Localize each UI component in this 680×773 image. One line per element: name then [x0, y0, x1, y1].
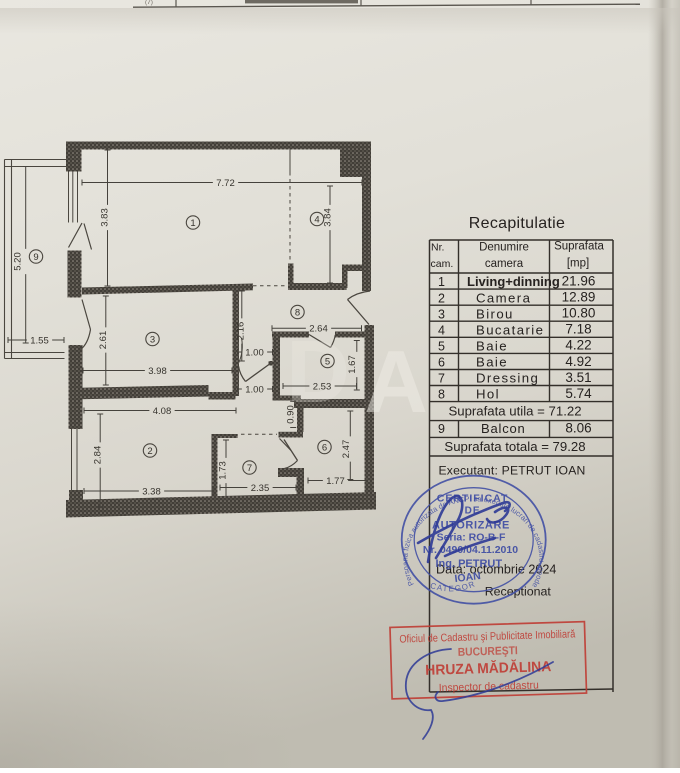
svg-text:2.64: 2.64	[309, 324, 328, 335]
svg-text:1: 1	[190, 218, 195, 229]
svg-text:Nr.: Nr.	[431, 242, 444, 254]
svg-text:2.47: 2.47	[341, 440, 352, 459]
svg-text:Living+dinning: Living+dinning	[467, 274, 560, 289]
svg-text:Bucatarie: Bucatarie	[476, 322, 544, 337]
svg-text:Suprafata totala = 79.28: Suprafata totala = 79.28	[444, 439, 585, 454]
svg-text:Camera: Camera	[476, 290, 531, 305]
svg-text:9: 9	[438, 422, 445, 436]
svg-text:12.89: 12.89	[562, 290, 596, 305]
svg-text:Birou: Birou	[476, 306, 514, 321]
svg-text:3.83: 3.83	[100, 208, 111, 227]
svg-text:4: 4	[438, 323, 445, 337]
svg-text:1.77: 1.77	[326, 476, 345, 487]
svg-text:(7): (7)	[145, 0, 153, 6]
svg-text:8: 8	[295, 307, 300, 318]
svg-text:Dressing: Dressing	[476, 371, 539, 386]
svg-text:Baie: Baie	[476, 338, 508, 353]
svg-text:1.55: 1.55	[30, 335, 49, 346]
svg-text:7: 7	[247, 463, 252, 474]
svg-text:Ing. PETRUT: Ing. PETRUT	[435, 558, 502, 570]
svg-text:cam.: cam.	[431, 258, 454, 270]
svg-text:2.35: 2.35	[251, 483, 270, 494]
svg-text:Recapitulatie: Recapitulatie	[469, 215, 565, 232]
svg-text:1.00: 1.00	[245, 384, 264, 395]
svg-text:6: 6	[438, 355, 445, 369]
svg-text:6: 6	[322, 442, 327, 453]
svg-text:3.98: 3.98	[148, 366, 167, 377]
svg-text:4.22: 4.22	[565, 338, 591, 353]
svg-text:8.06: 8.06	[565, 420, 591, 435]
svg-text:8: 8	[438, 388, 445, 402]
svg-text:2: 2	[438, 291, 445, 305]
svg-text:4.92: 4.92	[565, 354, 591, 369]
svg-text:10.80: 10.80	[562, 306, 596, 321]
svg-text:1.67: 1.67	[347, 355, 358, 374]
svg-text:Balcon: Balcon	[481, 421, 526, 436]
svg-text:camera: camera	[485, 258, 524, 270]
svg-text:0.90: 0.90	[285, 405, 296, 424]
svg-text:3.38: 3.38	[142, 486, 161, 497]
svg-text:7.72: 7.72	[216, 178, 235, 189]
svg-text:Denumire: Denumire	[479, 242, 529, 254]
svg-text:9: 9	[33, 252, 38, 263]
svg-text:21.96: 21.96	[562, 274, 596, 289]
svg-text:4.08: 4.08	[153, 406, 172, 417]
svg-text:5.20: 5.20	[13, 252, 24, 271]
svg-text:2.16: 2.16	[236, 322, 247, 341]
svg-text:1.00: 1.00	[245, 347, 264, 358]
svg-text:2.61: 2.61	[98, 331, 109, 350]
svg-text:BUCUREŞTI: BUCUREŞTI	[458, 645, 518, 659]
svg-text:Suprafata: Suprafata	[554, 241, 604, 253]
svg-text:Suprafata utila = 71.22: Suprafata utila = 71.22	[448, 404, 581, 419]
svg-text:Receptionat: Receptionat	[485, 585, 552, 599]
svg-text:A: A	[364, 332, 428, 431]
svg-text:5.74: 5.74	[565, 386, 592, 401]
svg-text:5: 5	[438, 339, 445, 353]
svg-text:5: 5	[325, 356, 330, 367]
svg-text:Executant: PETRUT IOAN: Executant: PETRUT IOAN	[438, 464, 585, 478]
svg-text:1: 1	[438, 275, 445, 289]
svg-text:3: 3	[438, 307, 445, 321]
svg-text:[mp]: [mp]	[567, 258, 589, 270]
svg-text:7: 7	[438, 372, 445, 386]
svg-text:Hol: Hol	[476, 387, 500, 402]
svg-text:2: 2	[147, 446, 152, 457]
svg-text:4: 4	[314, 214, 319, 225]
svg-text:1.73: 1.73	[217, 461, 228, 480]
svg-text:3.84: 3.84	[323, 208, 334, 227]
svg-text:7.18: 7.18	[565, 322, 591, 337]
svg-text:2.84: 2.84	[93, 446, 104, 465]
svg-text:2.53: 2.53	[313, 381, 332, 392]
svg-text:Baie: Baie	[476, 354, 508, 369]
svg-text:3.51: 3.51	[565, 370, 591, 385]
svg-text:3: 3	[150, 334, 155, 345]
